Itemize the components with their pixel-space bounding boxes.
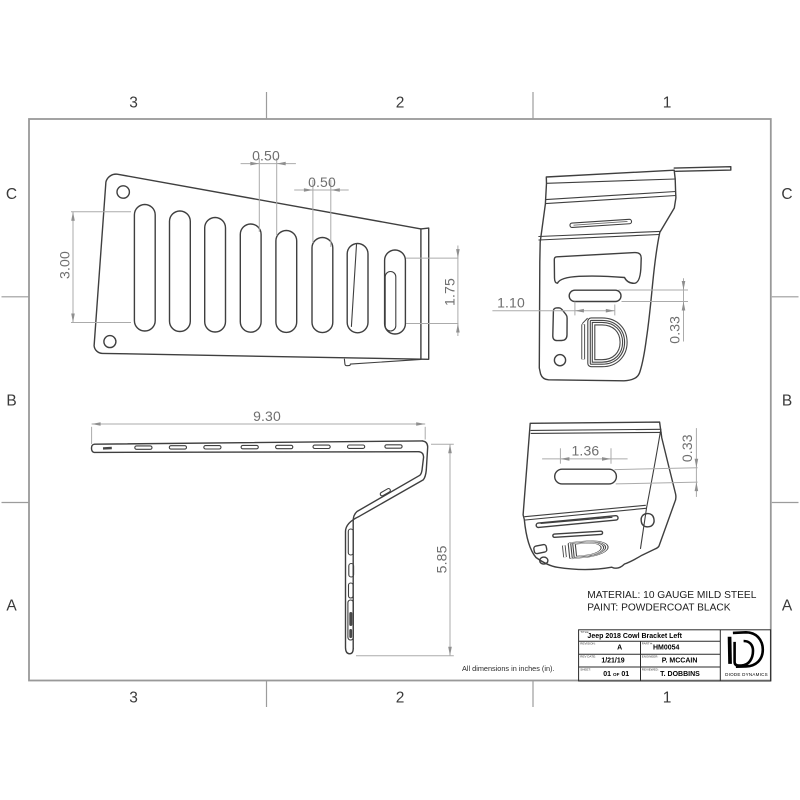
svg-text:1.36: 1.36 xyxy=(571,443,599,459)
svg-text:3: 3 xyxy=(129,94,138,111)
svg-text:P. MCCAIN: P. MCCAIN xyxy=(662,657,698,664)
svg-text:1/21/19: 1/21/19 xyxy=(601,657,624,664)
svg-text:2: 2 xyxy=(396,690,405,707)
svg-text:PAINT: POWDERCOAT BLACK: PAINT: POWDERCOAT BLACK xyxy=(587,602,730,613)
svg-text:C: C xyxy=(6,186,17,203)
svg-text:1: 1 xyxy=(663,690,672,707)
svg-text:2: 2 xyxy=(396,94,405,111)
svg-text:MATERIAL: 10 GAUGE MILD STEEL: MATERIAL: 10 GAUGE MILD STEEL xyxy=(587,590,756,601)
svg-text:REVISION:: REVISION: xyxy=(580,642,595,646)
svg-text:PART #:: PART #: xyxy=(642,642,653,646)
svg-text:REV DATE:: REV DATE: xyxy=(580,654,596,658)
svg-text:1: 1 xyxy=(663,94,672,111)
svg-text:0.50: 0.50 xyxy=(308,174,336,190)
svg-text:5.85: 5.85 xyxy=(434,545,450,573)
svg-text:B: B xyxy=(782,393,792,410)
svg-text:A: A xyxy=(782,597,793,614)
svg-text:A: A xyxy=(6,597,17,614)
svg-text:HM0054: HM0054 xyxy=(653,644,680,651)
svg-text:9.30: 9.30 xyxy=(253,408,281,424)
svg-text:T. DOBBINS: T. DOBBINS xyxy=(660,671,700,678)
svg-text:A: A xyxy=(617,644,622,651)
svg-text:0.33: 0.33 xyxy=(679,434,695,462)
svg-text:DIODE DYNAMICS: DIODE DYNAMICS xyxy=(725,672,768,677)
svg-text:REVIEWED:: REVIEWED: xyxy=(642,667,659,671)
svg-text:3: 3 xyxy=(129,690,138,707)
svg-text:01 OF 01: 01 OF 01 xyxy=(603,671,629,678)
svg-text:ENGINEER:: ENGINEER: xyxy=(642,654,659,658)
svg-text:SHEET:: SHEET: xyxy=(580,667,591,671)
svg-text:C: C xyxy=(781,186,792,203)
svg-text:Jeep 2018 Cowl Bracket Left: Jeep 2018 Cowl Bracket Left xyxy=(587,633,682,640)
svg-text:3.00: 3.00 xyxy=(57,251,73,279)
svg-text:B: B xyxy=(6,393,16,410)
svg-text:0.33: 0.33 xyxy=(667,316,683,344)
svg-text:1.75: 1.75 xyxy=(442,278,458,306)
svg-text:All dimensions in inches (in).: All dimensions in inches (in). xyxy=(462,664,554,673)
svg-text:1.10: 1.10 xyxy=(497,295,525,311)
svg-text:0.50: 0.50 xyxy=(252,148,280,164)
